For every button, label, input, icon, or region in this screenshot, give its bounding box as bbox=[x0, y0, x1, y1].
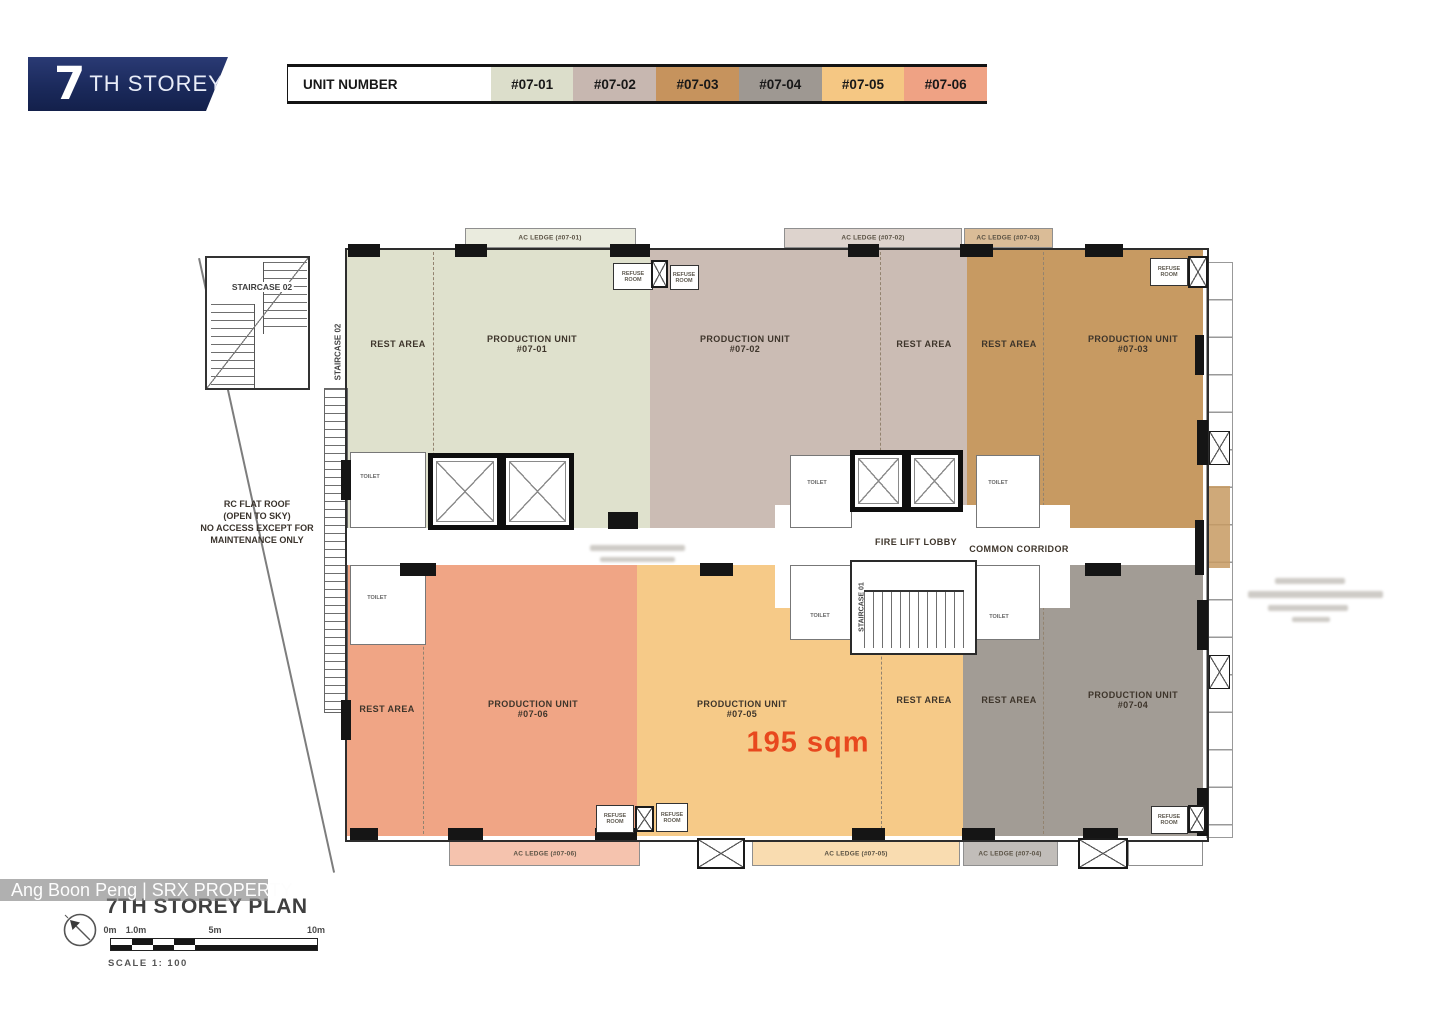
lift-x-symbol bbox=[436, 461, 494, 522]
wall-segment bbox=[448, 828, 483, 840]
faint-drawing-text bbox=[600, 557, 675, 562]
faint-stamp-text bbox=[1292, 617, 1330, 622]
scale-tick-0m: 0m bbox=[103, 925, 116, 935]
toilet-label: TOILET bbox=[810, 613, 829, 619]
storey-number: 7 bbox=[54, 60, 85, 108]
stair-treads bbox=[864, 590, 964, 648]
toilet-label: TOILET bbox=[988, 480, 1007, 486]
unit-number-text: #07-06 bbox=[488, 709, 578, 719]
production-unit-text: PRODUCTION UNIT bbox=[488, 699, 578, 709]
scale-text: SCALE 1: 100 bbox=[108, 958, 188, 969]
scale-bar-block bbox=[153, 945, 174, 951]
scale-bar-block bbox=[195, 945, 216, 951]
unit-07-03-rest-label: REST AREA bbox=[981, 339, 1036, 349]
refuse-x-box bbox=[1188, 805, 1206, 833]
roof-note-line: (OPEN TO SKY) bbox=[168, 510, 346, 522]
wall-segment bbox=[455, 244, 487, 257]
refuse-x-box bbox=[1188, 256, 1208, 288]
scale-bar-block bbox=[111, 945, 132, 951]
wall-segment bbox=[1085, 563, 1121, 576]
scale-tick-10m: 10m bbox=[307, 925, 325, 935]
wall-segment bbox=[1195, 520, 1204, 575]
ac-ledge-07-04-label: AC LEDGE (#07-04) bbox=[978, 851, 1041, 858]
common-corridor-label: COMMON CORRIDOR bbox=[969, 544, 1069, 554]
unit-number-text: #07-03 bbox=[1088, 344, 1178, 354]
lift-x-symbol bbox=[914, 458, 955, 504]
ac-ledge-opening bbox=[1078, 838, 1128, 869]
refuse-room-label: REFUSE ROOM bbox=[616, 271, 650, 283]
scale-tick-5m: 5m bbox=[208, 925, 221, 935]
refuse-room-label: REFUSE ROOM bbox=[1152, 266, 1186, 278]
wall-segment bbox=[1197, 600, 1208, 650]
scale-bar-block bbox=[174, 939, 195, 945]
production-unit-text: PRODUCTION UNIT bbox=[1088, 334, 1178, 344]
right-ledge-x-cell bbox=[1209, 431, 1230, 465]
wall-segment bbox=[700, 563, 733, 576]
legend-swatch-07-01: #07-01 bbox=[491, 67, 574, 101]
annex-staircase-label: STAIRCASE 02 bbox=[230, 282, 294, 292]
storey-suffix: TH STOREY bbox=[89, 71, 224, 97]
unit-07-06-rest-label: REST AREA bbox=[359, 704, 414, 714]
lift-x-symbol bbox=[509, 461, 566, 522]
wall-segment bbox=[1085, 244, 1123, 257]
legend-swatch-07-03: #07-03 bbox=[656, 67, 739, 101]
roof-note-line: MAINTENANCE ONLY bbox=[168, 534, 346, 546]
lift-x-symbol bbox=[858, 458, 899, 504]
unit-07-04-production-label: PRODUCTION UNIT #07-04 bbox=[1088, 690, 1178, 710]
production-unit-text: PRODUCTION UNIT bbox=[697, 699, 787, 709]
faint-stamp-text bbox=[1268, 605, 1348, 611]
unit-07-02-rest-label: REST AREA bbox=[896, 339, 951, 349]
wall-segment bbox=[852, 828, 885, 840]
unit-07-04-rest-label: REST AREA bbox=[981, 695, 1036, 705]
wall-segment bbox=[610, 244, 650, 257]
floor-plan-page: 7 TH STOREY UNIT NUMBER #07-01 #07-02 #0… bbox=[0, 0, 1440, 1012]
inner-staircase-label: STAIRCASE 02 bbox=[334, 324, 343, 381]
refuse-room-label: REFUSE ROOM bbox=[667, 272, 701, 284]
fire-lift-shaft bbox=[850, 450, 907, 512]
scale-tick-1m: 1.0m bbox=[126, 925, 147, 935]
toilet-label: TOILET bbox=[807, 480, 826, 486]
production-unit-text: PRODUCTION UNIT bbox=[1088, 690, 1178, 700]
production-unit-text: PRODUCTION UNIT bbox=[700, 334, 790, 344]
ac-ledge-opening bbox=[697, 838, 745, 869]
toilet-label: TOILET bbox=[367, 595, 386, 601]
lift-shaft bbox=[501, 453, 574, 530]
scale-bar-block bbox=[216, 945, 317, 951]
unit-number-text: #07-01 bbox=[487, 344, 577, 354]
toilet-label: TOILET bbox=[989, 614, 1008, 620]
legend-swatch-07-05: #07-05 bbox=[822, 67, 905, 101]
unit-07-01-production-label: PRODUCTION UNIT #07-01 bbox=[487, 334, 577, 354]
unit-number-text: #07-05 bbox=[697, 709, 787, 719]
refuse-room-label: REFUSE ROOM bbox=[1152, 814, 1186, 826]
refuse-room-label: REFUSE ROOM bbox=[655, 812, 689, 824]
right-ledge-x-cell bbox=[1209, 655, 1230, 689]
refuse-x-box bbox=[635, 806, 654, 832]
right-ac-ledge-column bbox=[1206, 262, 1233, 838]
legend-title: UNIT NUMBER bbox=[288, 67, 491, 101]
scale-bar bbox=[110, 938, 318, 951]
wall-segment bbox=[1195, 335, 1204, 375]
unit-07-05-production-label: PRODUCTION UNIT #07-05 bbox=[697, 699, 787, 719]
toilet-label: TOILET bbox=[360, 474, 379, 480]
refuse-room-label: REFUSE ROOM bbox=[598, 813, 632, 825]
storey-banner: 7 TH STOREY bbox=[28, 57, 228, 111]
fire-lift-shaft bbox=[906, 450, 963, 512]
scale-bar-block bbox=[132, 939, 153, 945]
roof-note-line: NO ACCESS EXCEPT FOR bbox=[168, 522, 346, 534]
ac-ledge-07-02-label: AC LEDGE (#07-02) bbox=[841, 235, 904, 242]
core-staircase-label: STAIRCASE 01 bbox=[859, 582, 866, 632]
lift-shaft bbox=[428, 453, 502, 530]
legend-swatch-07-04: #07-04 bbox=[739, 67, 822, 101]
wall-segment bbox=[608, 512, 638, 529]
wall-segment bbox=[960, 244, 993, 257]
wall-segment bbox=[348, 244, 380, 257]
unit-07-02-production-label: PRODUCTION UNIT #07-02 bbox=[700, 334, 790, 354]
ac-ledge-07-06-label: AC LEDGE (#07-06) bbox=[513, 851, 576, 858]
unit-07-05-rest-label: REST AREA bbox=[896, 695, 951, 705]
core-staircase-box bbox=[850, 560, 977, 655]
unit-number-text: #07-04 bbox=[1088, 700, 1178, 710]
unit-number-text: #07-02 bbox=[700, 344, 790, 354]
ac-ledge-07-05-label: AC LEDGE (#07-05) bbox=[824, 851, 887, 858]
wall-segment bbox=[848, 244, 879, 257]
wall-segment bbox=[400, 563, 436, 576]
ac-ledge-07-03-label: AC LEDGE (#07-03) bbox=[976, 235, 1039, 242]
wall-segment bbox=[962, 828, 995, 840]
unit-legend: UNIT NUMBER #07-01 #07-02 #07-03 #07-04 … bbox=[287, 64, 987, 104]
faint-stamp-text bbox=[1275, 578, 1345, 584]
unit-07-06-production-label: PRODUCTION UNIT #07-06 bbox=[488, 699, 578, 719]
right-ledge-tan-cell bbox=[1209, 486, 1230, 568]
unit-07-01-rest-label: REST AREA bbox=[370, 339, 425, 349]
roof-note-line: RC FLAT ROOF bbox=[168, 498, 346, 510]
wall-segment bbox=[341, 700, 351, 740]
wall-segment bbox=[341, 460, 351, 500]
unit-07-03-production-label: PRODUCTION UNIT #07-03 bbox=[1088, 334, 1178, 354]
legend-swatch-07-06: #07-06 bbox=[904, 67, 987, 101]
wall-segment bbox=[350, 828, 378, 840]
faint-stamp-text bbox=[1248, 591, 1383, 598]
refuse-x-box bbox=[651, 260, 668, 288]
north-arrow-icon bbox=[62, 912, 98, 948]
watermark: Ang Boon Peng | SRX PROPERTY bbox=[0, 879, 268, 901]
annex-staircase-box bbox=[205, 256, 310, 390]
ac-ledge-07-01-label: AC LEDGE (#07-01) bbox=[518, 235, 581, 242]
wall-segment bbox=[1197, 420, 1208, 465]
stair-diagonal bbox=[207, 258, 308, 388]
roof-note: RC FLAT ROOF (OPEN TO SKY) NO ACCESS EXC… bbox=[168, 498, 346, 546]
faint-drawing-text bbox=[590, 545, 685, 551]
production-unit-text: PRODUCTION UNIT bbox=[487, 334, 577, 344]
ac-ledge-plain bbox=[1128, 841, 1203, 866]
fire-lift-lobby-label: FIRE LIFT LOBBY bbox=[875, 537, 957, 547]
legend-swatch-07-02: #07-02 bbox=[573, 67, 656, 101]
unit-07-05-area-highlight: 195 sqm bbox=[746, 727, 869, 760]
